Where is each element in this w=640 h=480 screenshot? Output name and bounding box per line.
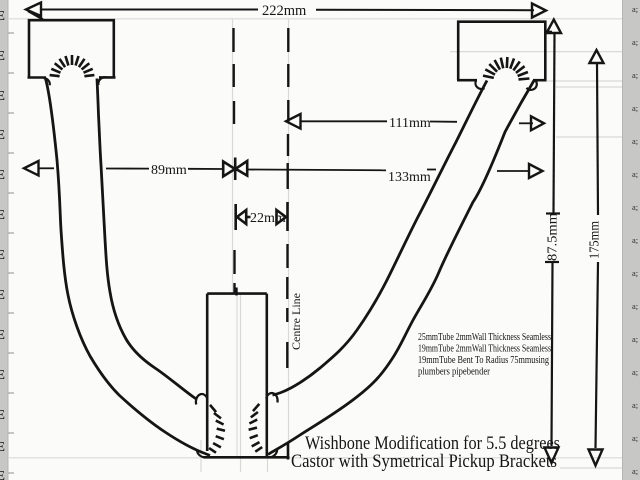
svg-text:111mm: 111mm: [389, 116, 431, 131]
svg-text:E: E: [0, 167, 5, 182]
svg-text:222mm: 222mm: [262, 3, 307, 19]
svg-text:E: E: [0, 207, 5, 222]
svg-text:E: E: [0, 367, 5, 382]
svg-text:E: E: [0, 247, 5, 262]
svg-text:22mm: 22mm: [250, 211, 286, 226]
svg-text:a;: a;: [632, 433, 638, 443]
svg-text:a;: a;: [632, 334, 638, 344]
svg-text:Centre Line: Centre Line: [289, 293, 303, 350]
svg-text:E: E: [0, 439, 5, 454]
svg-text:E: E: [0, 48, 5, 63]
svg-text:175mm: 175mm: [587, 221, 602, 259]
svg-text:a;: a;: [632, 400, 638, 410]
svg-text:a;: a;: [632, 37, 638, 47]
svg-text:87.5mm: 87.5mm: [545, 212, 560, 261]
svg-text:Castor with Symetrical Pickup: Castor with Symetrical Pickup Brackets: [291, 451, 557, 472]
svg-text:a;: a;: [632, 4, 638, 14]
svg-text:a;: a;: [632, 367, 638, 377]
svg-text:19mmTube 2mmWall Thickness Sea: 19mmTube 2mmWall Thickness Seamless: [418, 344, 551, 355]
svg-text:plumbers pipebender: plumbers pipebender: [418, 367, 491, 378]
svg-text:a;: a;: [632, 103, 638, 113]
svg-text:E: E: [0, 127, 5, 142]
svg-text:a;: a;: [632, 466, 638, 476]
svg-text:E: E: [0, 407, 5, 422]
svg-text:a;: a;: [632, 235, 638, 245]
svg-text:19mmTube Bent To Radius 75mmus: 19mmTube Bent To Radius 75mmusing: [418, 355, 549, 366]
svg-text:E: E: [0, 88, 5, 103]
svg-text:133mm: 133mm: [388, 170, 431, 185]
svg-text:a;: a;: [632, 268, 638, 278]
svg-text:a;: a;: [632, 301, 638, 311]
svg-text:a;: a;: [632, 70, 638, 80]
svg-text:E: E: [0, 327, 5, 342]
svg-text:a;: a;: [632, 136, 638, 146]
svg-text:a;: a;: [632, 169, 638, 179]
svg-text:25mmTube 2mmWall Thickness Sea: 25mmTube 2mmWall Thickness Seamless: [418, 332, 551, 343]
svg-text:89mm: 89mm: [151, 163, 187, 178]
svg-text:a;: a;: [632, 202, 638, 212]
svg-text:E: E: [0, 8, 5, 23]
svg-text:E: E: [0, 287, 5, 302]
svg-text:E: E: [0, 468, 5, 480]
